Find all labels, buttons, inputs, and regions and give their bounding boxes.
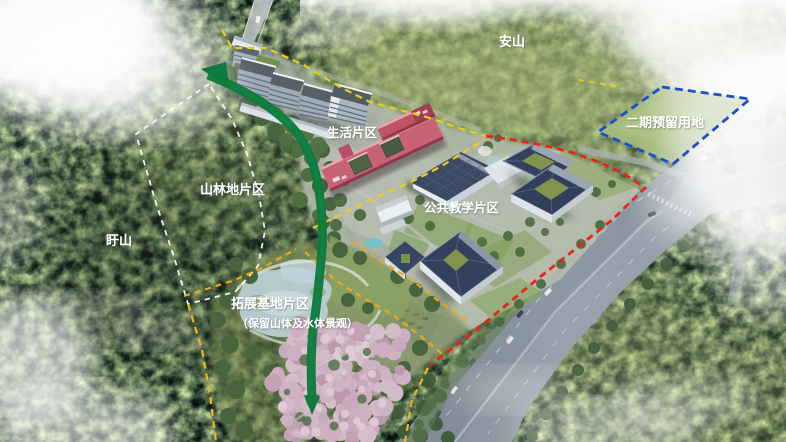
svg-text:（保留山体及水体景观）: （保留山体及水体景观） — [237, 316, 358, 330]
svg-text:二期预留用地: 二期预留用地 — [626, 115, 704, 130]
svg-text:安山: 安山 — [499, 34, 525, 49]
svg-text:山林地片区: 山林地片区 — [200, 182, 265, 197]
svg-text:生活片区: 生活片区 — [327, 125, 378, 140]
svg-text:公共教学片区: 公共教学片区 — [424, 200, 500, 215]
svg-text:拓展基地片区: 拓展基地片区 — [231, 296, 309, 311]
svg-text:盱山: 盱山 — [106, 233, 132, 248]
